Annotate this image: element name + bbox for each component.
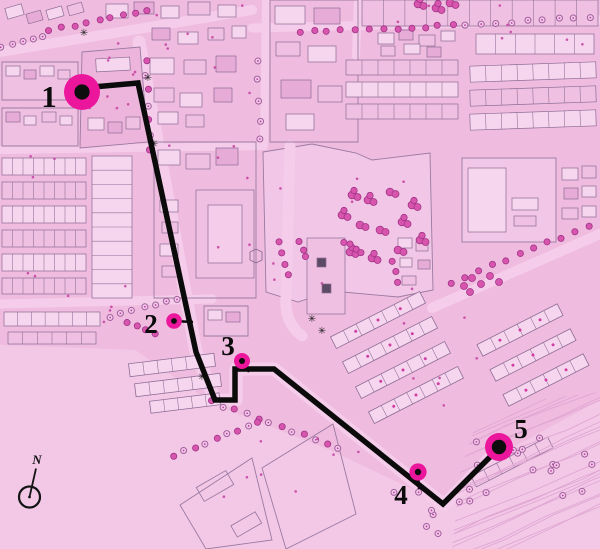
svg-text:✳: ✳: [80, 28, 88, 39]
waypoint-label-5: 5: [514, 414, 528, 444]
svg-text:✳: ✳: [144, 73, 152, 84]
north-label: N: [31, 452, 42, 467]
waypoint-label-3: 3: [221, 331, 235, 361]
waypoint-label-4: 4: [394, 480, 408, 510]
waypoint-label-2: 2: [144, 309, 158, 339]
waypoint-dot-core: [239, 358, 245, 364]
map-canvas[interactable]: ✳✳✳✳✳✳ 12345 N: [0, 0, 600, 549]
waypoint-dot-core: [415, 469, 421, 475]
svg-text:✳: ✳: [318, 326, 326, 337]
waypoint-dot-core: [171, 318, 177, 324]
route-map-image: ✳✳✳✳✳✳ 12345 N: [0, 0, 600, 549]
waypoint-label-1: 1: [41, 79, 57, 114]
svg-text:✳: ✳: [308, 314, 316, 325]
waypoint-dot-core: [492, 440, 506, 454]
compass-pivot: [28, 496, 31, 499]
waypoint-dot-core: [74, 84, 89, 99]
waypoint-marker-1: [64, 74, 100, 110]
waypoint-marker-5: [485, 433, 513, 461]
